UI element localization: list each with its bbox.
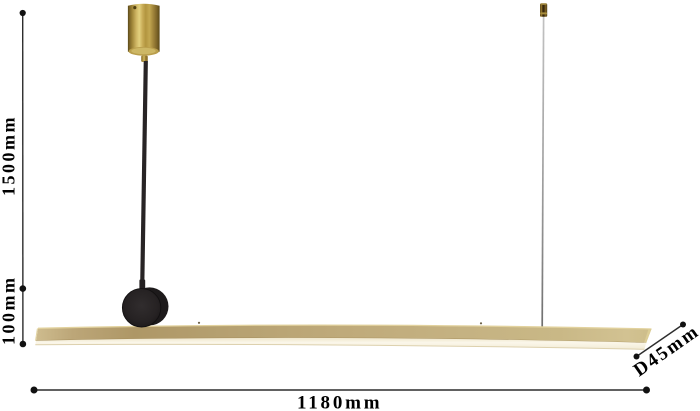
svg-text:1500mm: 1500mm xyxy=(0,115,19,196)
svg-text:1180mm: 1180mm xyxy=(297,393,382,411)
svg-text:100mm: 100mm xyxy=(0,276,19,346)
